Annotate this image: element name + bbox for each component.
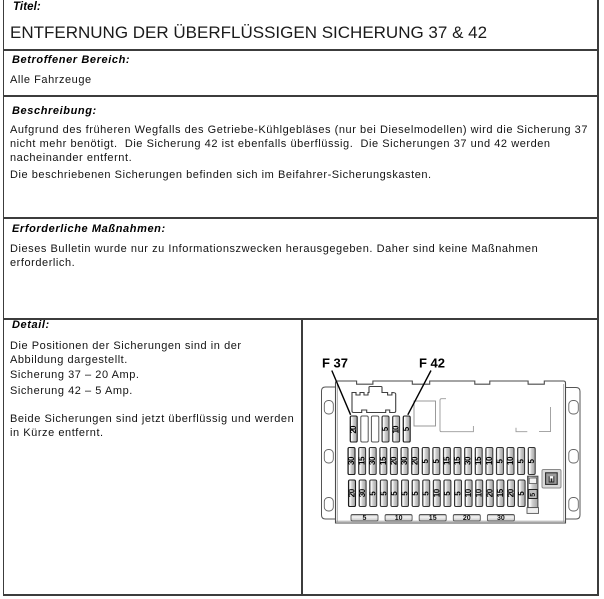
svg-text:15: 15 <box>379 456 388 465</box>
svg-text:5: 5 <box>390 491 399 496</box>
svg-text:10: 10 <box>506 456 515 465</box>
svg-text:15: 15 <box>429 515 437 522</box>
svg-text:5: 5 <box>369 491 378 496</box>
svg-text:10: 10 <box>475 488 484 497</box>
svg-text:5: 5 <box>401 491 410 496</box>
svg-text:30: 30 <box>358 488 367 497</box>
svg-text:20: 20 <box>507 488 516 497</box>
svg-text:5: 5 <box>517 459 526 464</box>
svg-text:20: 20 <box>389 456 398 465</box>
svg-text:20: 20 <box>485 488 494 497</box>
svg-text:5: 5 <box>379 491 388 496</box>
svg-text:10: 10 <box>464 488 473 497</box>
svg-text:F 42: F 42 <box>419 356 445 371</box>
svg-text:5: 5 <box>411 491 420 496</box>
svg-text:10: 10 <box>485 456 494 465</box>
svg-text:15: 15 <box>453 456 462 465</box>
svg-text:20: 20 <box>349 425 358 434</box>
svg-text:5: 5 <box>495 459 504 464</box>
svg-text:30: 30 <box>347 456 356 465</box>
svg-text:10: 10 <box>392 425 401 434</box>
svg-text:20: 20 <box>463 515 471 522</box>
svg-text:5: 5 <box>421 459 430 464</box>
svg-text:15: 15 <box>474 456 483 465</box>
svg-text:5: 5 <box>432 459 441 464</box>
svg-text:5: 5 <box>422 491 431 496</box>
svg-text:15: 15 <box>496 488 505 497</box>
svg-text:5: 5 <box>530 493 537 497</box>
svg-text:30: 30 <box>497 515 505 522</box>
svg-text:5: 5 <box>527 459 536 464</box>
svg-text:F 37: F 37 <box>322 356 348 371</box>
svg-text:20: 20 <box>411 456 420 465</box>
svg-text:15: 15 <box>442 456 451 465</box>
svg-text:15: 15 <box>358 456 367 465</box>
svg-text:5: 5 <box>381 426 390 431</box>
svg-text:20: 20 <box>348 488 357 497</box>
svg-text:30: 30 <box>464 456 473 465</box>
svg-text:30: 30 <box>400 456 409 465</box>
svg-text:5: 5 <box>454 491 463 496</box>
svg-text:10: 10 <box>432 488 441 497</box>
svg-text:5: 5 <box>402 426 411 431</box>
svg-text:5: 5 <box>517 491 526 496</box>
svg-text:10: 10 <box>395 515 403 522</box>
svg-text:30: 30 <box>368 456 377 465</box>
svg-text:5: 5 <box>363 515 367 522</box>
svg-text:5: 5 <box>443 491 452 496</box>
